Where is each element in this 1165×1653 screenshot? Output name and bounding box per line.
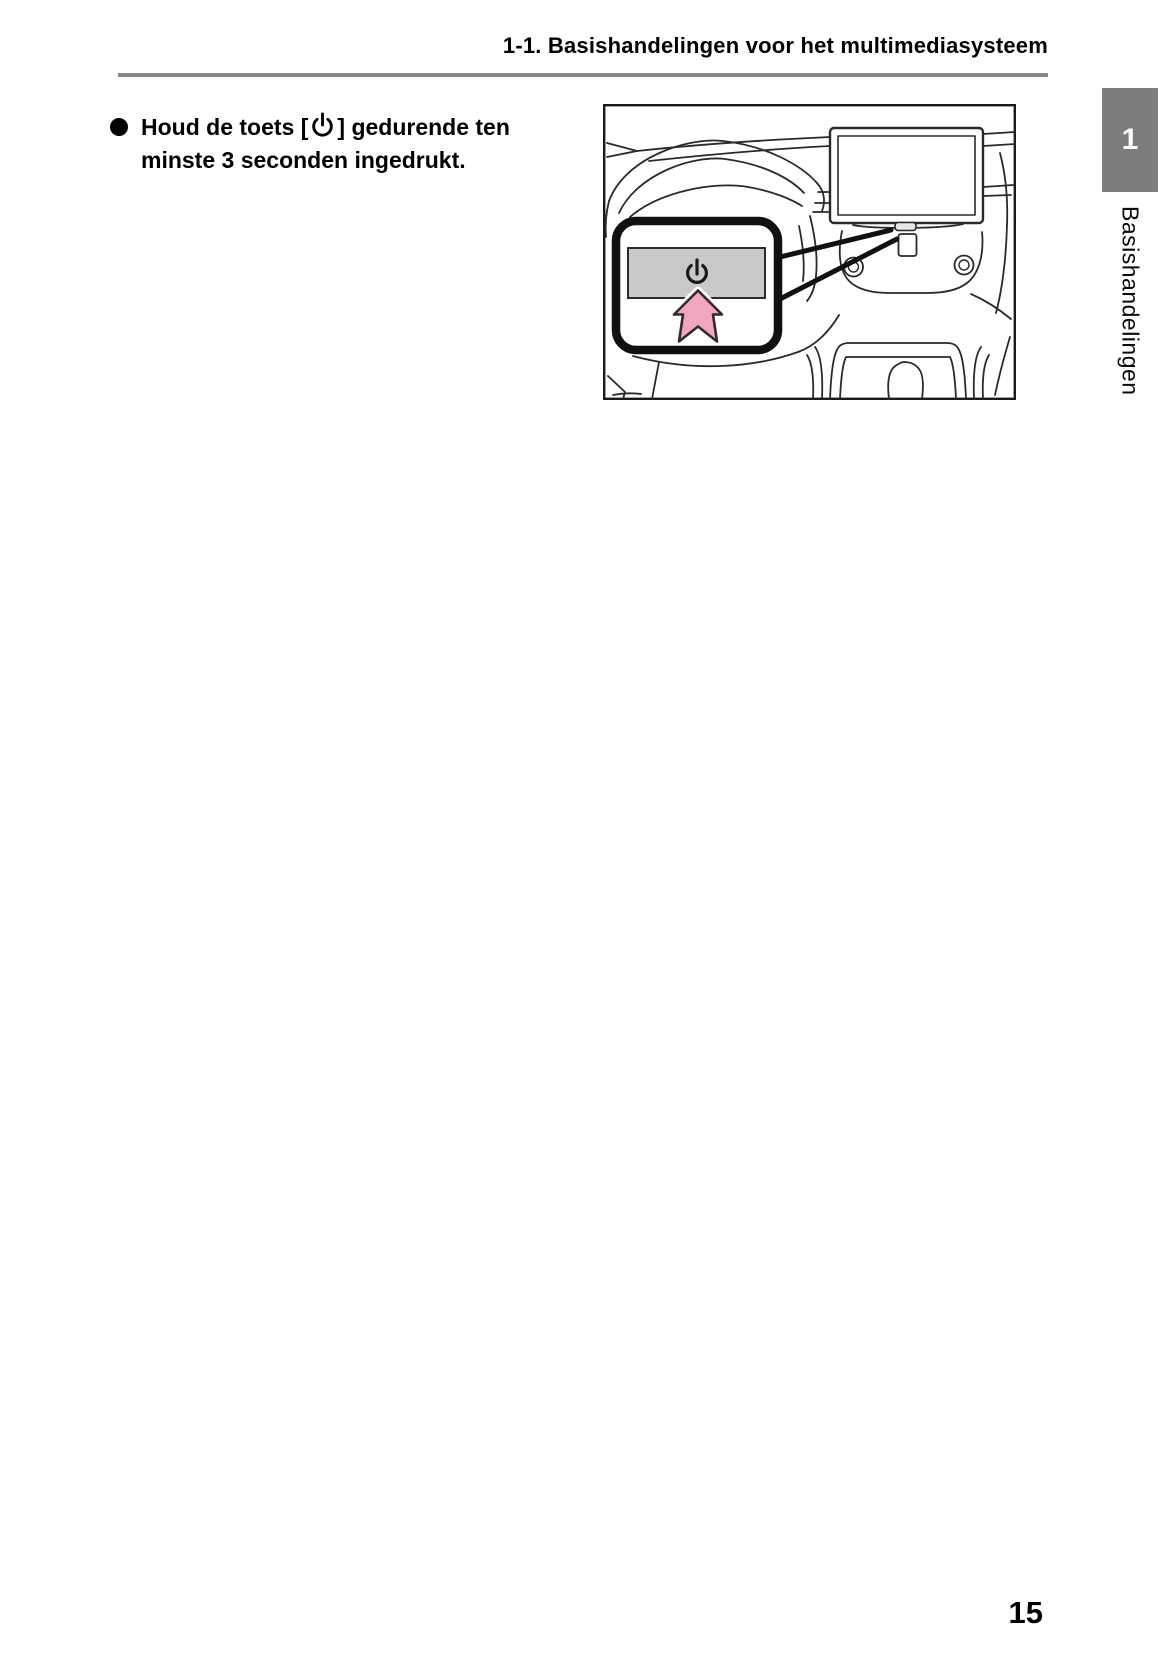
power-icon (309, 110, 336, 139)
figure-frame (603, 104, 1016, 400)
chapter-tab: 1 (1102, 88, 1158, 192)
display-mount (899, 234, 917, 256)
chapter-label: Basishandelingen (1117, 206, 1144, 446)
instruction-line2: minste 3 seconden ingedrukt. (141, 144, 510, 177)
display-screen (830, 128, 983, 223)
header-divider (118, 73, 1048, 77)
page-number: 15 (1009, 1595, 1043, 1631)
instruction-text: Houd de toets [] gedurende ten minste 3 … (141, 110, 510, 177)
dashboard-illustration (603, 104, 1016, 400)
instruction-after-icon: ] gedurende ten (337, 114, 510, 140)
manual-page: 1-1. Basishandelingen voor het multimedi… (0, 0, 1165, 1653)
chapter-label-container: Basishandelingen (1102, 206, 1158, 446)
instruction-line1: Houd de toets [] gedurende ten (141, 114, 510, 140)
instruction-before-icon: Houd de toets [ (141, 114, 308, 140)
section-title: 1-1. Basishandelingen voor het multimedi… (503, 33, 1048, 59)
instruction-item: Houd de toets [] gedurende ten minste 3 … (110, 110, 570, 177)
dash-power-button (895, 223, 916, 231)
chapter-number: 1 (1122, 123, 1139, 157)
bullet-icon (110, 118, 128, 136)
